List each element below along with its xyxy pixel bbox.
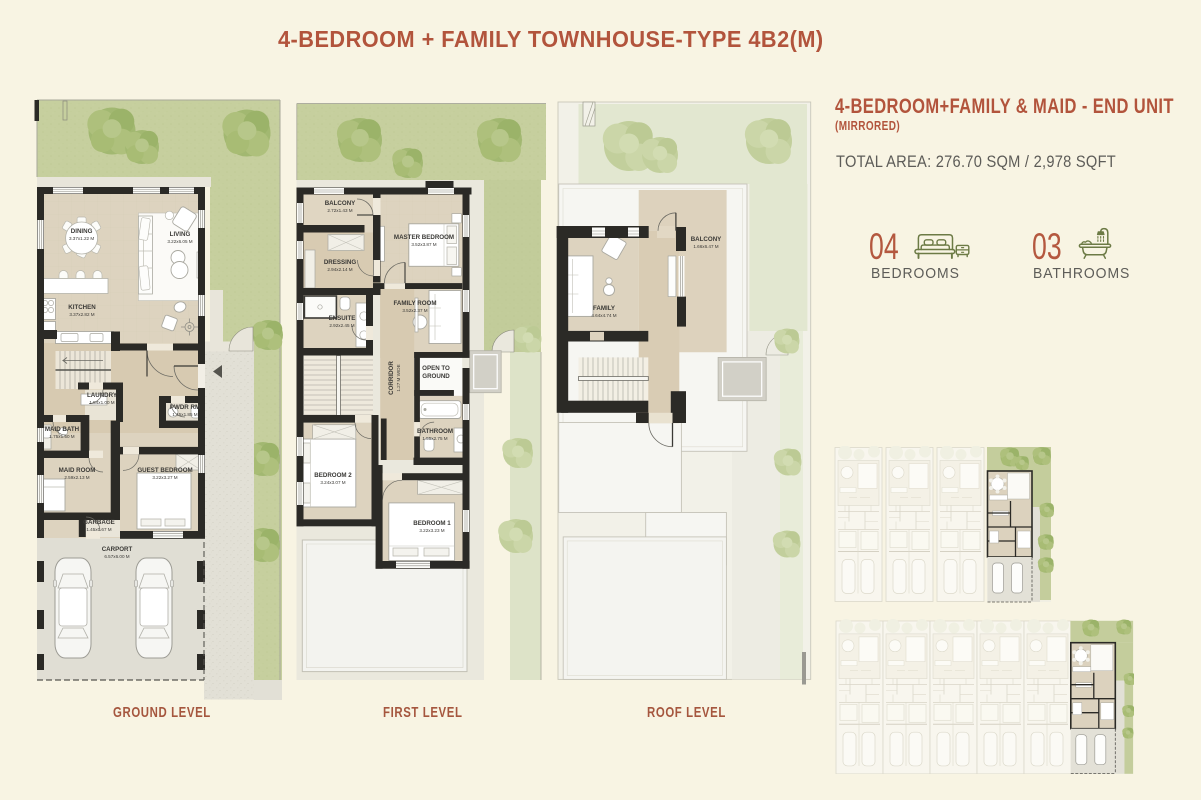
svg-text:4.64x4.74 M: 4.64x4.74 M: [591, 313, 616, 318]
svg-text:1.27 M WIDE: 1.27 M WIDE: [396, 364, 401, 391]
svg-text:FAMILY ROOM: FAMILY ROOM: [394, 300, 437, 307]
svg-text:MAID BATH: MAID BATH: [45, 426, 80, 433]
svg-text:2.59x2.13 M: 2.59x2.13 M: [64, 475, 89, 480]
svg-text:MASTER BEDROOM: MASTER BEDROOM: [394, 234, 454, 241]
svg-text:3.22x3.23 M: 3.22x3.23 M: [419, 528, 444, 533]
svg-text:3.37x2.82 M: 3.37x2.82 M: [69, 312, 94, 317]
svg-text:GARBAGE: GARBAGE: [83, 519, 115, 526]
svg-text:OPEN TO: OPEN TO: [422, 365, 450, 372]
svg-text:MAID ROOM: MAID ROOM: [59, 467, 96, 474]
svg-text:PWDR RM: PWDR RM: [170, 404, 200, 411]
svg-text:BATHROOM: BATHROOM: [417, 428, 453, 435]
svg-text:3.52x2.37 M: 3.52x2.37 M: [402, 308, 427, 313]
svg-text:1.55x2.75 M: 1.55x2.75 M: [422, 436, 447, 441]
svg-text:FAMILY: FAMILY: [593, 305, 616, 312]
svg-text:LAUNDRY: LAUNDRY: [87, 392, 118, 399]
svg-text:CORRIDOR: CORRIDOR: [388, 361, 395, 395]
svg-text:3.52x3.87 M: 3.52x3.87 M: [411, 242, 436, 247]
svg-text:BEDROOM 1: BEDROOM 1: [413, 520, 451, 527]
svg-text:BALCONY: BALCONY: [325, 200, 356, 207]
svg-text:1.45x1.85 M: 1.45x1.85 M: [172, 412, 197, 417]
svg-text:BALCONY: BALCONY: [691, 236, 722, 243]
svg-text:GROUND: GROUND: [422, 373, 450, 380]
svg-text:ENSUITE: ENSUITE: [329, 315, 356, 322]
svg-text:GUEST BEDROOM: GUEST BEDROOM: [137, 467, 192, 474]
svg-text:LIVING: LIVING: [170, 231, 191, 238]
svg-text:3.24x3.07 M: 3.24x3.07 M: [320, 480, 345, 485]
svg-text:2.92x2.45 M: 2.92x2.45 M: [329, 323, 354, 328]
svg-text:1.75x1.50 M: 1.75x1.50 M: [49, 434, 74, 439]
svg-text:2.94x2.14 M: 2.94x2.14 M: [327, 267, 352, 272]
svg-text:1.66x6.47 M: 1.66x6.47 M: [693, 244, 718, 249]
svg-text:BEDROOM 2: BEDROOM 2: [314, 472, 352, 479]
svg-text:2.72x1.43 M: 2.72x1.43 M: [327, 208, 352, 213]
svg-text:1.45x0.67 M: 1.45x0.67 M: [86, 527, 111, 532]
svg-text:1.54x1.00 M: 1.54x1.00 M: [89, 400, 114, 405]
svg-text:3.22x6.05 M: 3.22x6.05 M: [167, 239, 192, 244]
svg-text:CARPORT: CARPORT: [102, 546, 133, 553]
svg-text:3.37x1.22 M: 3.37x1.22 M: [69, 236, 94, 241]
svg-text:DINING: DINING: [71, 228, 93, 235]
svg-text:DRESSING: DRESSING: [324, 259, 357, 266]
svg-text:3.22x3.27 M: 3.22x3.27 M: [152, 475, 177, 480]
svg-text:KITCHEN: KITCHEN: [68, 304, 96, 311]
svg-text:6.57x6.00 M: 6.57x6.00 M: [104, 554, 129, 559]
